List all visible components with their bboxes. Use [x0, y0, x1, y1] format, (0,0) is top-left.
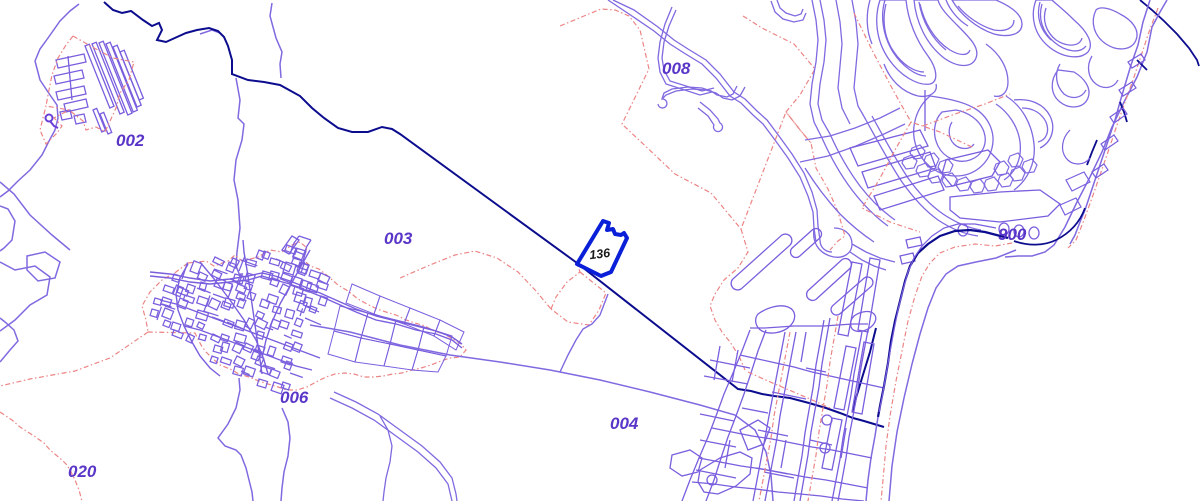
svg-text:020: 020: [68, 462, 97, 481]
svg-text:002: 002: [116, 131, 145, 150]
svg-text:136: 136: [588, 246, 611, 263]
svg-text:003: 003: [384, 229, 413, 248]
svg-text:004: 004: [610, 414, 639, 433]
svg-text:900: 900: [998, 225, 1027, 244]
svg-text:008: 008: [662, 59, 691, 78]
svg-text:006: 006: [280, 388, 309, 407]
